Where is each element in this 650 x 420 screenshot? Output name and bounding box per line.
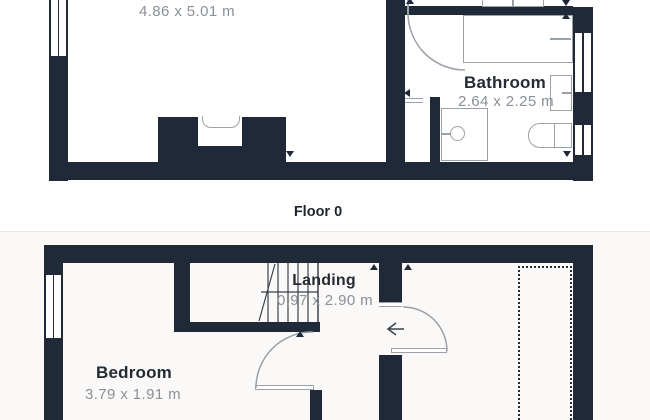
room-dimensions: 3.79 x 1.91 m xyxy=(53,386,213,403)
room-name: Bedroom xyxy=(64,363,204,383)
room-name: Landing xyxy=(254,272,394,290)
floor-caption: Floor 0 xyxy=(248,204,388,220)
opening-marker-icon xyxy=(562,0,570,6)
opening-marker-icon xyxy=(406,0,414,4)
opening-marker-icon xyxy=(562,13,570,19)
door-arc-icon xyxy=(408,13,465,70)
opening-marker-icon xyxy=(563,151,571,157)
room-dimensions: 2.64 x 2.25 m xyxy=(426,93,586,110)
room-name: Bathroom xyxy=(430,73,580,93)
room-dimensions: 0.97 x 2.90 m xyxy=(245,292,405,309)
opening-marker-icon xyxy=(404,89,410,97)
opening-marker-icon xyxy=(286,151,294,157)
left-arrow-icon xyxy=(388,323,404,335)
door-arc-icon xyxy=(403,307,447,351)
opening-marker-icon xyxy=(404,264,412,270)
opening-marker-icon xyxy=(370,264,378,270)
room-dimensions: 4.86 x 5.01 m xyxy=(87,3,287,20)
floorplan-image: 4.86 x 5.01 m Bathroom 2.64 x 2.25 m Flo… xyxy=(0,0,650,420)
door-arc-icon xyxy=(256,332,313,388)
opening-marker-icon xyxy=(296,331,304,337)
